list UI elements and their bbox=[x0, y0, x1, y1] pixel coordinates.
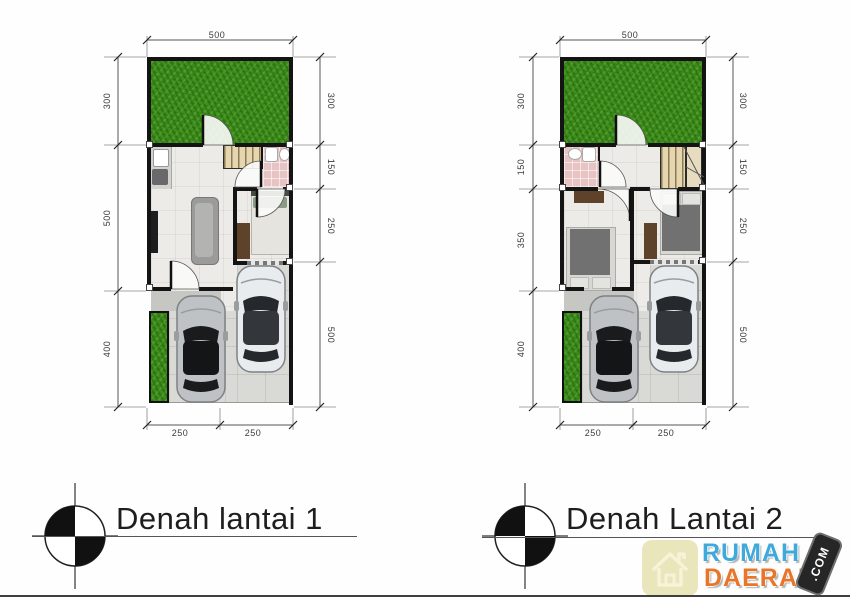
dim-label: 500 bbox=[737, 318, 749, 352]
dim-label: 500 bbox=[200, 29, 234, 41]
watermark-badge-text: .COM bbox=[806, 545, 832, 583]
bottom-border bbox=[0, 595, 850, 597]
watermark-logo: RUMAH DAERAH .COM bbox=[632, 538, 850, 598]
dim-label: 300 bbox=[325, 84, 337, 118]
dim-label: 500 bbox=[325, 318, 337, 352]
dim-label: 500 bbox=[613, 29, 647, 41]
dim-label: 250 bbox=[649, 427, 683, 439]
plan2-title: Denah Lantai 2 bbox=[566, 501, 783, 537]
dim-label: 250 bbox=[576, 427, 610, 439]
floorplan-lantai-1 bbox=[147, 57, 293, 407]
dim-label: 150 bbox=[515, 150, 527, 184]
dim-label: 400 bbox=[515, 332, 527, 366]
dim-label: 250 bbox=[325, 209, 337, 243]
dim-label: 150 bbox=[737, 150, 749, 184]
dim-label: 250 bbox=[163, 427, 197, 439]
dim-label: 300 bbox=[101, 84, 113, 118]
dim-label: 250 bbox=[236, 427, 270, 439]
plan1-overlay bbox=[147, 57, 293, 407]
house-icon bbox=[642, 540, 698, 596]
dim-label: 400 bbox=[101, 332, 113, 366]
dim-label: 250 bbox=[737, 209, 749, 243]
car-top-view bbox=[647, 266, 701, 372]
floorplan-lantai-2 bbox=[560, 57, 706, 407]
car-top-view bbox=[587, 296, 641, 402]
dim-label: 300 bbox=[737, 84, 749, 118]
dim-label: 500 bbox=[101, 201, 113, 235]
car-top-view bbox=[174, 296, 228, 402]
plan2-overlay bbox=[560, 57, 706, 407]
floorplan-canvas: 500 300 500 400 300 150 250 500 250 250 … bbox=[0, 0, 850, 601]
dim-label: 350 bbox=[515, 223, 527, 257]
car-top-view bbox=[234, 266, 288, 372]
plan1-title: Denah lantai 1 bbox=[116, 501, 323, 537]
dim-label: 300 bbox=[515, 84, 527, 118]
compass-icon bbox=[480, 481, 570, 591]
dim-label: 150 bbox=[325, 150, 337, 184]
